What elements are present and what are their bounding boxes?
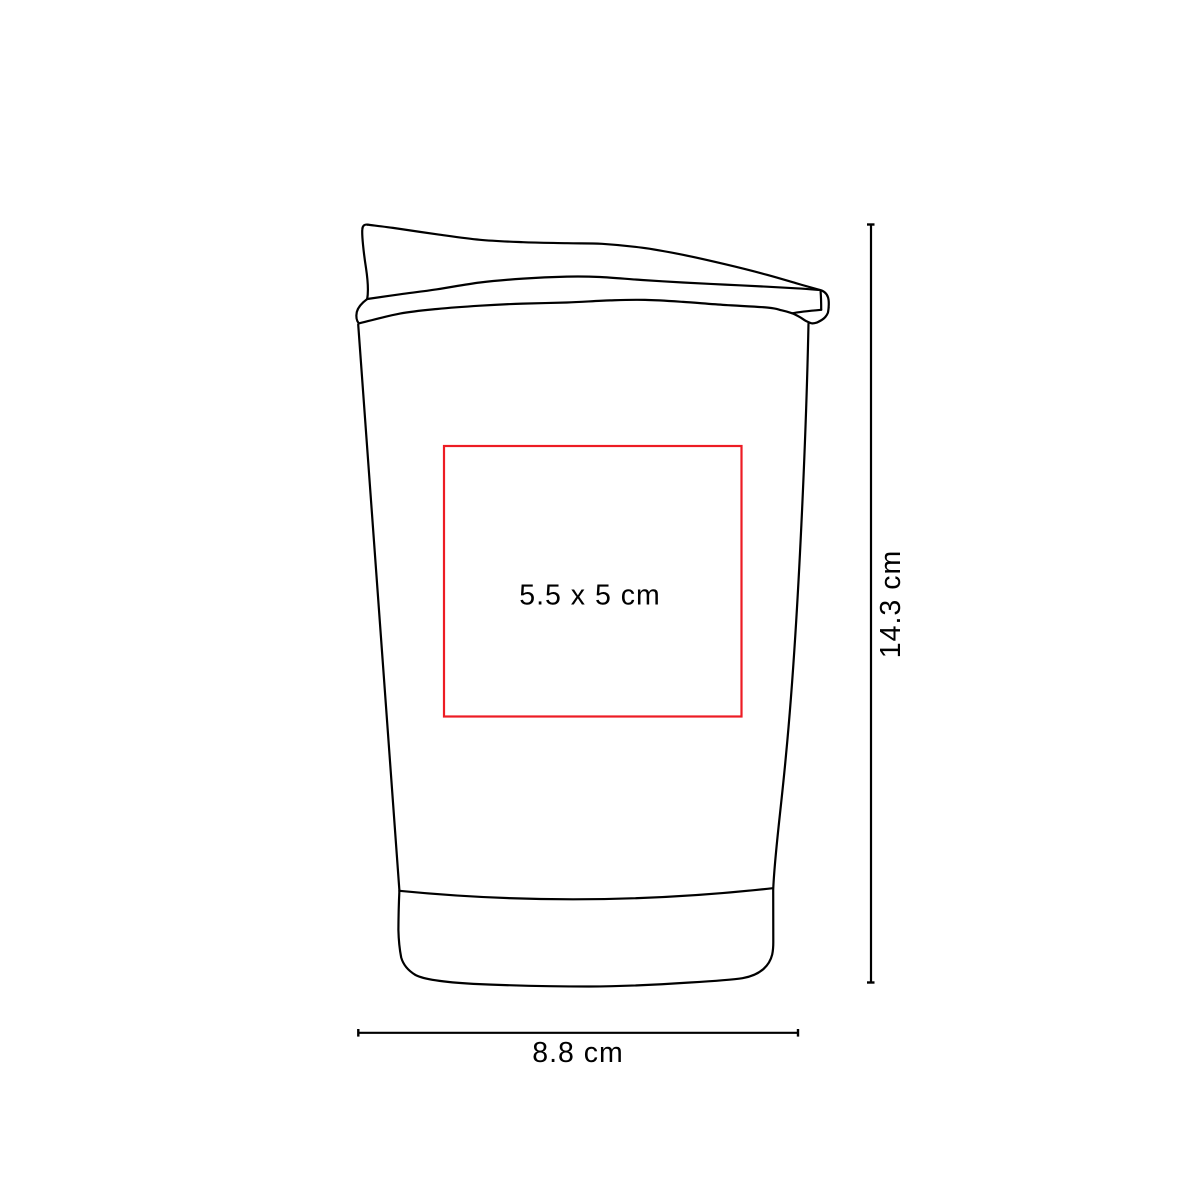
- svg-text:8.8 cm: 8.8 cm: [532, 1037, 624, 1069]
- svg-text:5.5 x 5 cm: 5.5 x 5 cm: [519, 580, 660, 612]
- svg-text:14.3 cm: 14.3 cm: [875, 550, 907, 658]
